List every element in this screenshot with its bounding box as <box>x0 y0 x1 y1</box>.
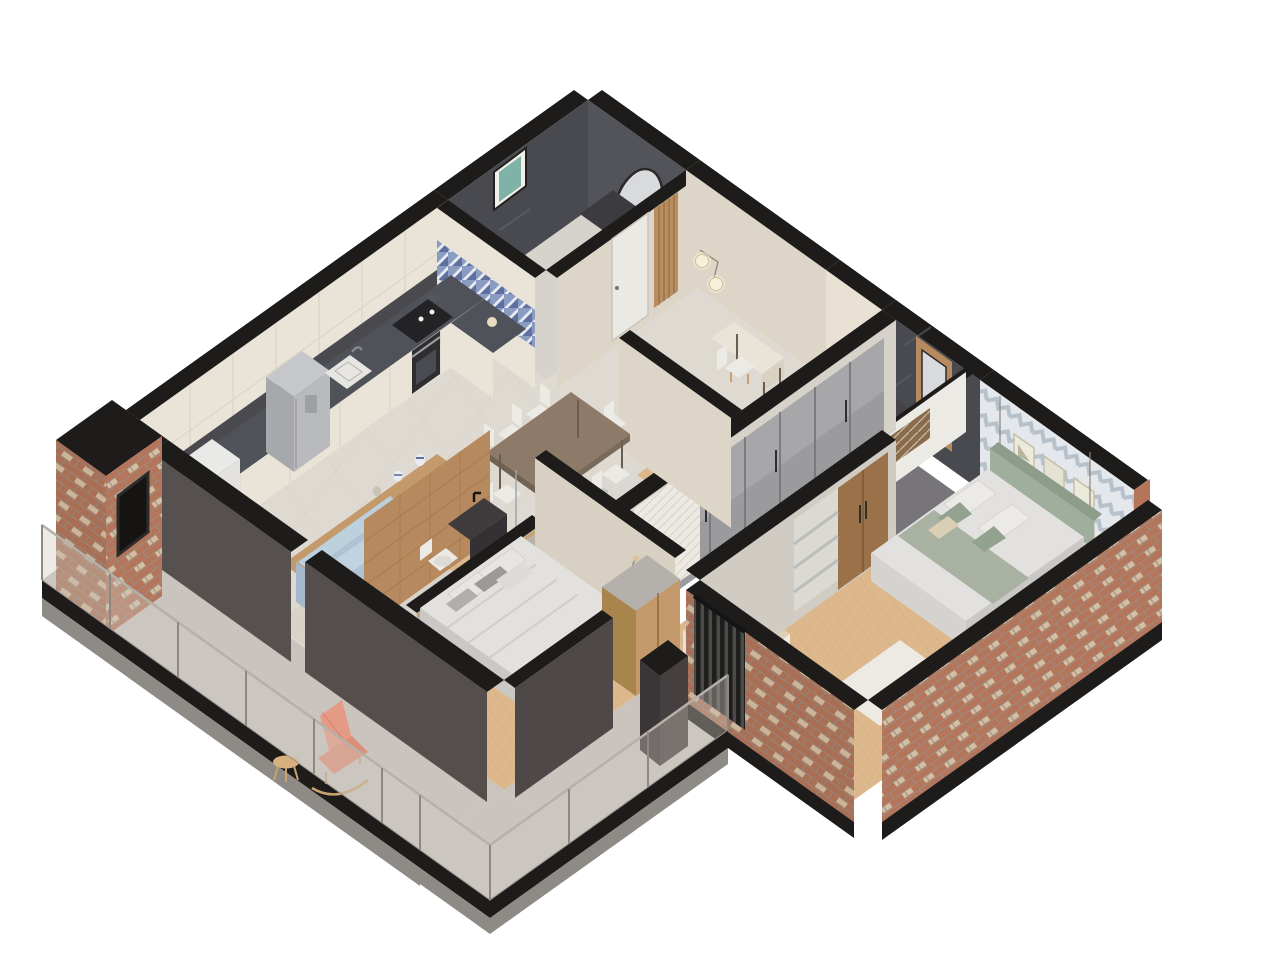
floorplan-render <box>0 0 1280 960</box>
cooking-pot <box>427 293 441 302</box>
door-knob <box>615 286 619 290</box>
isometric-apartment-scene <box>0 0 1280 960</box>
counter-vase <box>487 317 497 327</box>
